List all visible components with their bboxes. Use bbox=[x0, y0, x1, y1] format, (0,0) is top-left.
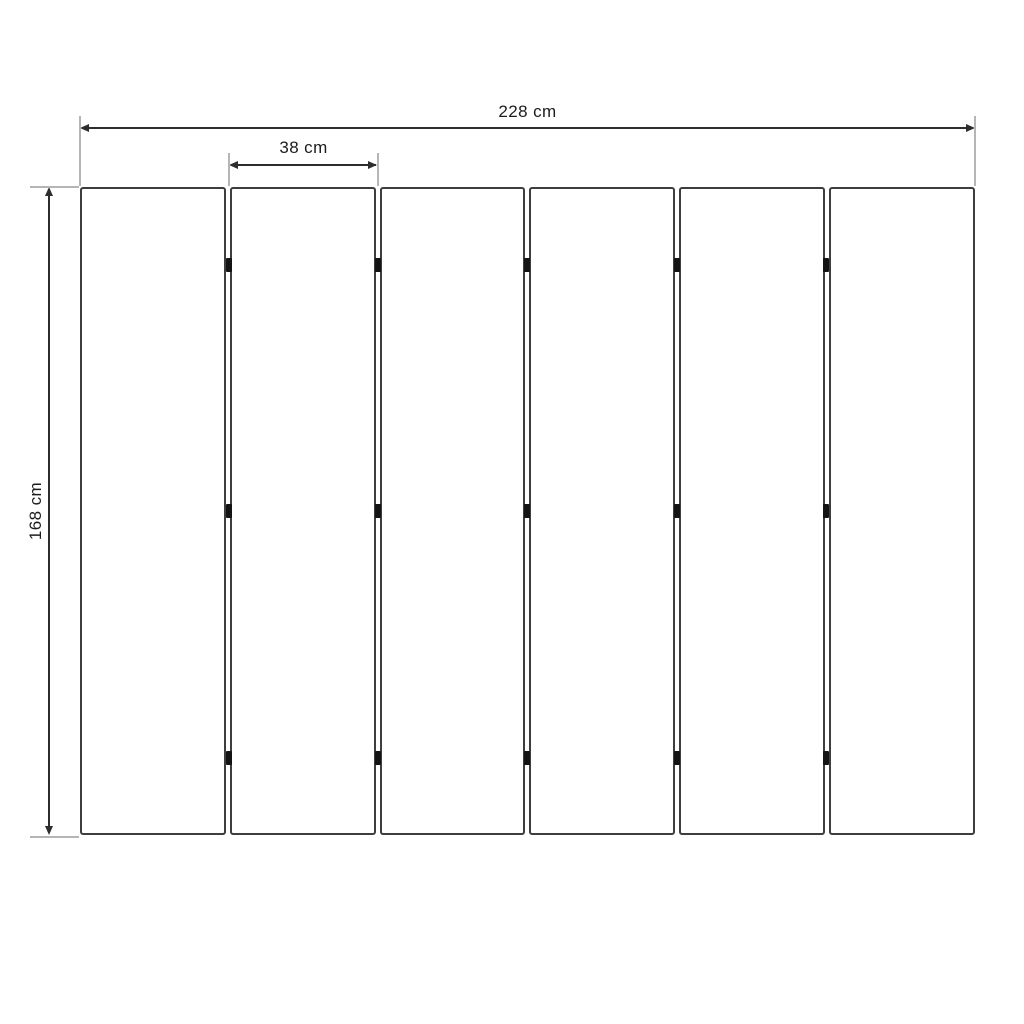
panel-width-extension-line-left bbox=[228, 153, 230, 186]
hinge-icon bbox=[524, 258, 530, 272]
total-width-extension-line-left bbox=[79, 116, 81, 186]
hinge-icon bbox=[375, 504, 381, 518]
hinge-icon bbox=[674, 258, 680, 272]
panel-width-arrow-right-icon bbox=[368, 161, 377, 169]
hinge-icon bbox=[823, 504, 829, 518]
hinge-icon bbox=[823, 751, 829, 765]
total-width-label: 228 cm bbox=[80, 102, 975, 122]
panel-6 bbox=[829, 187, 975, 835]
panel-height-label: 168 cm bbox=[26, 451, 46, 571]
hinge-icon bbox=[375, 751, 381, 765]
panel-5 bbox=[679, 187, 825, 835]
hinge-icon bbox=[674, 751, 680, 765]
panel-height-extension-line-top bbox=[30, 186, 79, 188]
total-width-dimension-line bbox=[82, 127, 973, 129]
panel-height-dimension-line bbox=[48, 189, 50, 833]
hinge-icon bbox=[375, 258, 381, 272]
hinge-icon bbox=[226, 504, 232, 518]
panel-height-arrow-down-icon bbox=[45, 826, 53, 835]
hinge-icon bbox=[524, 751, 530, 765]
panel-height-arrow-up-icon bbox=[45, 187, 53, 196]
panel-width-extension-line-right bbox=[377, 153, 379, 186]
panel-width-arrow-left-icon bbox=[229, 161, 238, 169]
panel-height-extension-line-bottom bbox=[30, 836, 79, 838]
panel-3 bbox=[380, 187, 526, 835]
total-width-arrow-left-icon bbox=[80, 124, 89, 132]
total-width-extension-line-right bbox=[974, 116, 976, 186]
hinge-icon bbox=[524, 504, 530, 518]
hinge-icon bbox=[674, 504, 680, 518]
panel-4 bbox=[529, 187, 675, 835]
panel-2 bbox=[230, 187, 376, 835]
hinge-icon bbox=[226, 258, 232, 272]
panel-width-label: 38 cm bbox=[229, 138, 378, 158]
hinge-icon bbox=[823, 258, 829, 272]
panel-width-dimension-line bbox=[231, 164, 376, 166]
panel-layout-diagram: 228 cm 38 cm 168 cm bbox=[0, 0, 1024, 1024]
panel-1 bbox=[80, 187, 226, 835]
hinge-icon bbox=[226, 751, 232, 765]
